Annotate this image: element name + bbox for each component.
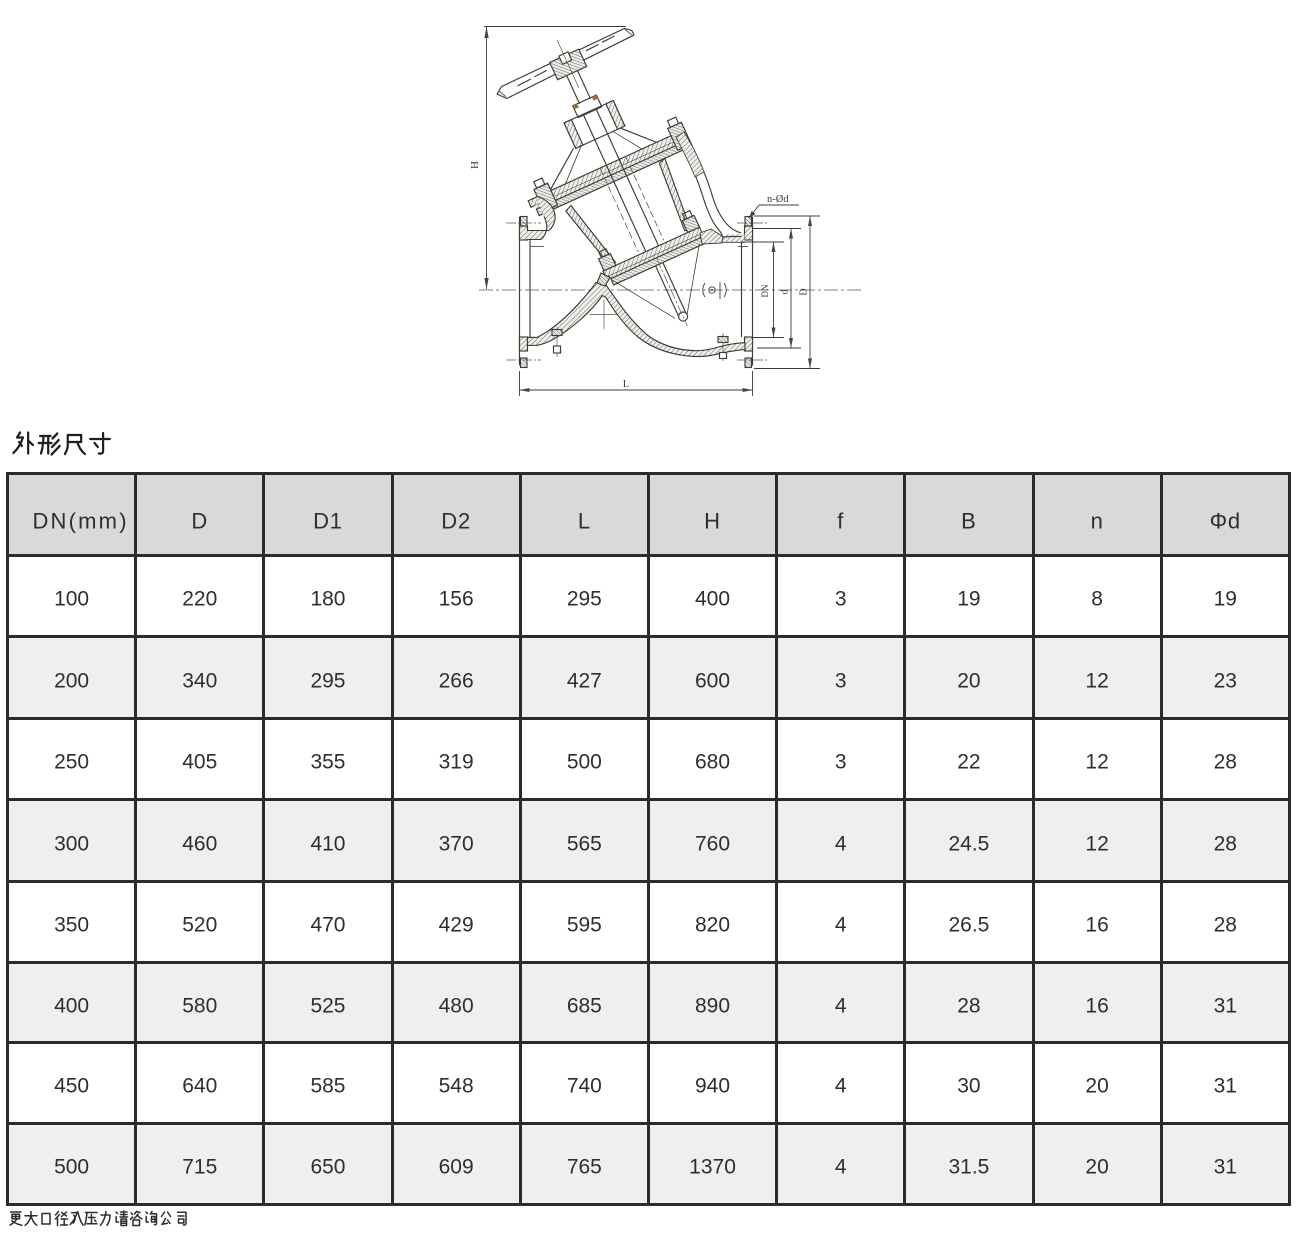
svg-text:H: H <box>469 161 481 169</box>
svg-text:DN: DN <box>760 284 770 297</box>
svg-text:d: d <box>780 290 791 295</box>
svg-text:D: D <box>799 288 810 295</box>
svg-text:L: L <box>623 379 629 390</box>
svg-text:n-Ød: n-Ød <box>767 194 789 205</box>
